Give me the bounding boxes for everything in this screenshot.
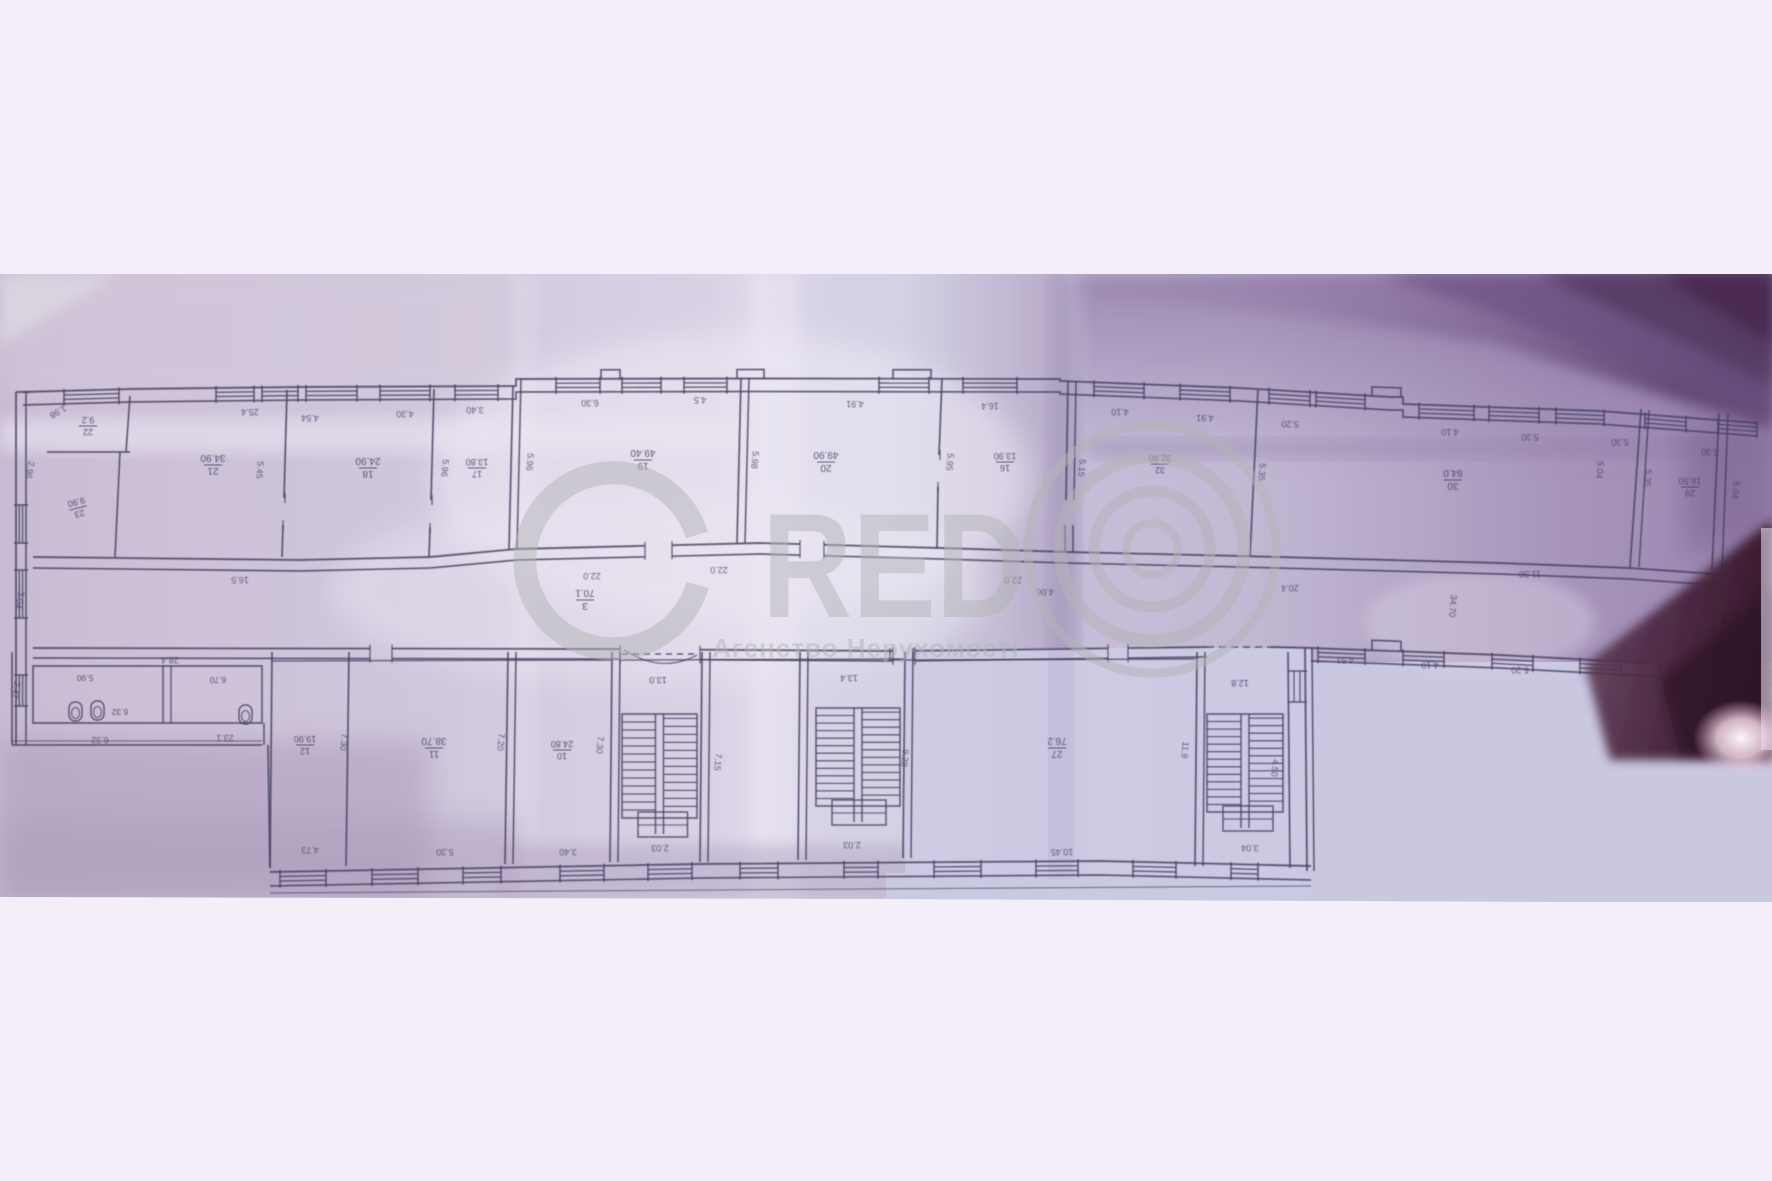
svg-text:4.5: 4.5	[694, 395, 707, 405]
svg-text:7.30: 7.30	[338, 733, 349, 751]
svg-text:25.4: 25.4	[241, 407, 259, 417]
svg-text:16: 16	[1000, 463, 1010, 473]
svg-text:76.2: 76.2	[1047, 735, 1067, 746]
svg-text:32: 32	[1155, 465, 1165, 475]
svg-text:4.10: 4.10	[1421, 660, 1439, 670]
svg-text:5.96: 5.96	[439, 459, 450, 477]
svg-text:3.40: 3.40	[559, 847, 577, 857]
svg-text:23.1: 23.1	[216, 733, 234, 743]
svg-text:17: 17	[472, 469, 482, 479]
svg-text:22.0: 22.0	[710, 565, 728, 575]
svg-text:20.4: 20.4	[1281, 583, 1299, 593]
svg-text:4.73: 4.73	[301, 845, 319, 855]
svg-text:5.35: 5.35	[1642, 469, 1653, 487]
svg-text:4.10: 4.10	[1111, 407, 1129, 417]
svg-text:16.5: 16.5	[231, 575, 249, 585]
svg-text:70.1: 70.1	[575, 587, 595, 598]
svg-text:29: 29	[1685, 488, 1695, 498]
svg-text:5.04: 5.04	[1730, 481, 1741, 499]
svg-text:5.30: 5.30	[1611, 437, 1629, 447]
svg-text:13.90: 13.90	[994, 451, 1017, 461]
svg-text:38.70: 38.70	[421, 735, 446, 746]
svg-text:16.50: 16.50	[1679, 476, 1702, 486]
svg-text:12: 12	[300, 746, 310, 756]
svg-text:22: 22	[83, 427, 93, 437]
svg-text:24.90: 24.90	[355, 455, 380, 466]
svg-text:7.30: 7.30	[594, 736, 605, 754]
svg-text:5.96: 5.96	[524, 453, 535, 471]
svg-text:6.70: 6.70	[209, 675, 226, 685]
svg-text:9.2: 9.2	[82, 415, 95, 425]
svg-text:RED: RED	[762, 483, 1026, 650]
svg-text:4.51: 4.51	[1336, 655, 1354, 665]
svg-text:18: 18	[362, 468, 374, 479]
svg-text:5.15: 5.15	[1076, 459, 1087, 477]
svg-text:22.0: 22.0	[583, 571, 601, 581]
svg-text:5.04: 5.04	[1594, 461, 1605, 479]
svg-text:5.98: 5.98	[749, 451, 760, 469]
svg-text:11.38: 11.38	[1519, 569, 1541, 579]
svg-text:9.28: 9.28	[899, 749, 910, 767]
svg-text:Агенство Нерухомості: Агенство Нерухомості	[712, 633, 1019, 663]
svg-text:3.04: 3.04	[1241, 843, 1259, 853]
svg-text:4.91: 4.91	[1196, 413, 1214, 423]
svg-text:49.40: 49.40	[630, 447, 655, 458]
svg-text:27: 27	[1051, 748, 1063, 759]
svg-text:10: 10	[557, 751, 567, 761]
svg-text:12.8: 12.8	[1231, 678, 1249, 688]
svg-text:5.20: 5.20	[1281, 419, 1299, 429]
svg-text:19.90: 19.90	[294, 734, 317, 744]
svg-text:4.50: 4.50	[1269, 759, 1280, 777]
svg-text:11: 11	[428, 748, 439, 759]
svg-text:20: 20	[820, 462, 832, 473]
svg-text:16.4: 16.4	[981, 401, 999, 411]
svg-text:49.90: 49.90	[813, 449, 838, 460]
svg-text:21: 21	[207, 465, 219, 476]
svg-text:30: 30	[1447, 480, 1459, 491]
svg-text:24.80: 24.80	[551, 739, 574, 749]
svg-text:6.32: 6.32	[111, 707, 128, 717]
svg-text:84.0: 84.0	[1443, 467, 1463, 478]
svg-text:34.90: 34.90	[200, 452, 225, 463]
svg-text:5.95: 5.95	[944, 453, 955, 471]
svg-text:5.30: 5.30	[436, 847, 454, 857]
svg-text:4.54: 4.54	[301, 413, 319, 423]
svg-text:13.0: 13.0	[649, 675, 667, 685]
svg-text:5.30: 5.30	[1701, 447, 1719, 457]
svg-text:2.03: 2.03	[651, 843, 669, 853]
svg-text:5.20: 5.20	[1511, 665, 1529, 675]
svg-text:3: 3	[582, 600, 588, 611]
svg-text:6.30: 6.30	[581, 398, 599, 408]
svg-text:5.90: 5.90	[76, 673, 93, 683]
svg-text:2.03: 2.03	[843, 840, 861, 850]
svg-text:6.32: 6.32	[91, 735, 109, 745]
svg-text:5.30: 5.30	[1521, 432, 1539, 442]
svg-text:4.91: 4.91	[846, 399, 864, 409]
svg-text:13.4: 13.4	[840, 673, 858, 683]
svg-text:7.15: 7.15	[712, 753, 723, 771]
svg-text:5.45: 5.45	[254, 461, 265, 479]
svg-text:4.30: 4.30	[396, 409, 414, 419]
svg-text:28.4: 28.4	[161, 655, 179, 665]
svg-text:7.20: 7.20	[495, 733, 506, 751]
svg-text:3.40: 3.40	[466, 405, 484, 415]
svg-text:4.10: 4.10	[1441, 427, 1459, 437]
svg-text:11.9: 11.9	[1179, 741, 1190, 759]
svg-text:10.45: 10.45	[1051, 847, 1074, 857]
svg-text:34.70: 34.70	[1447, 594, 1459, 617]
svg-text:13.80: 13.80	[466, 457, 489, 467]
